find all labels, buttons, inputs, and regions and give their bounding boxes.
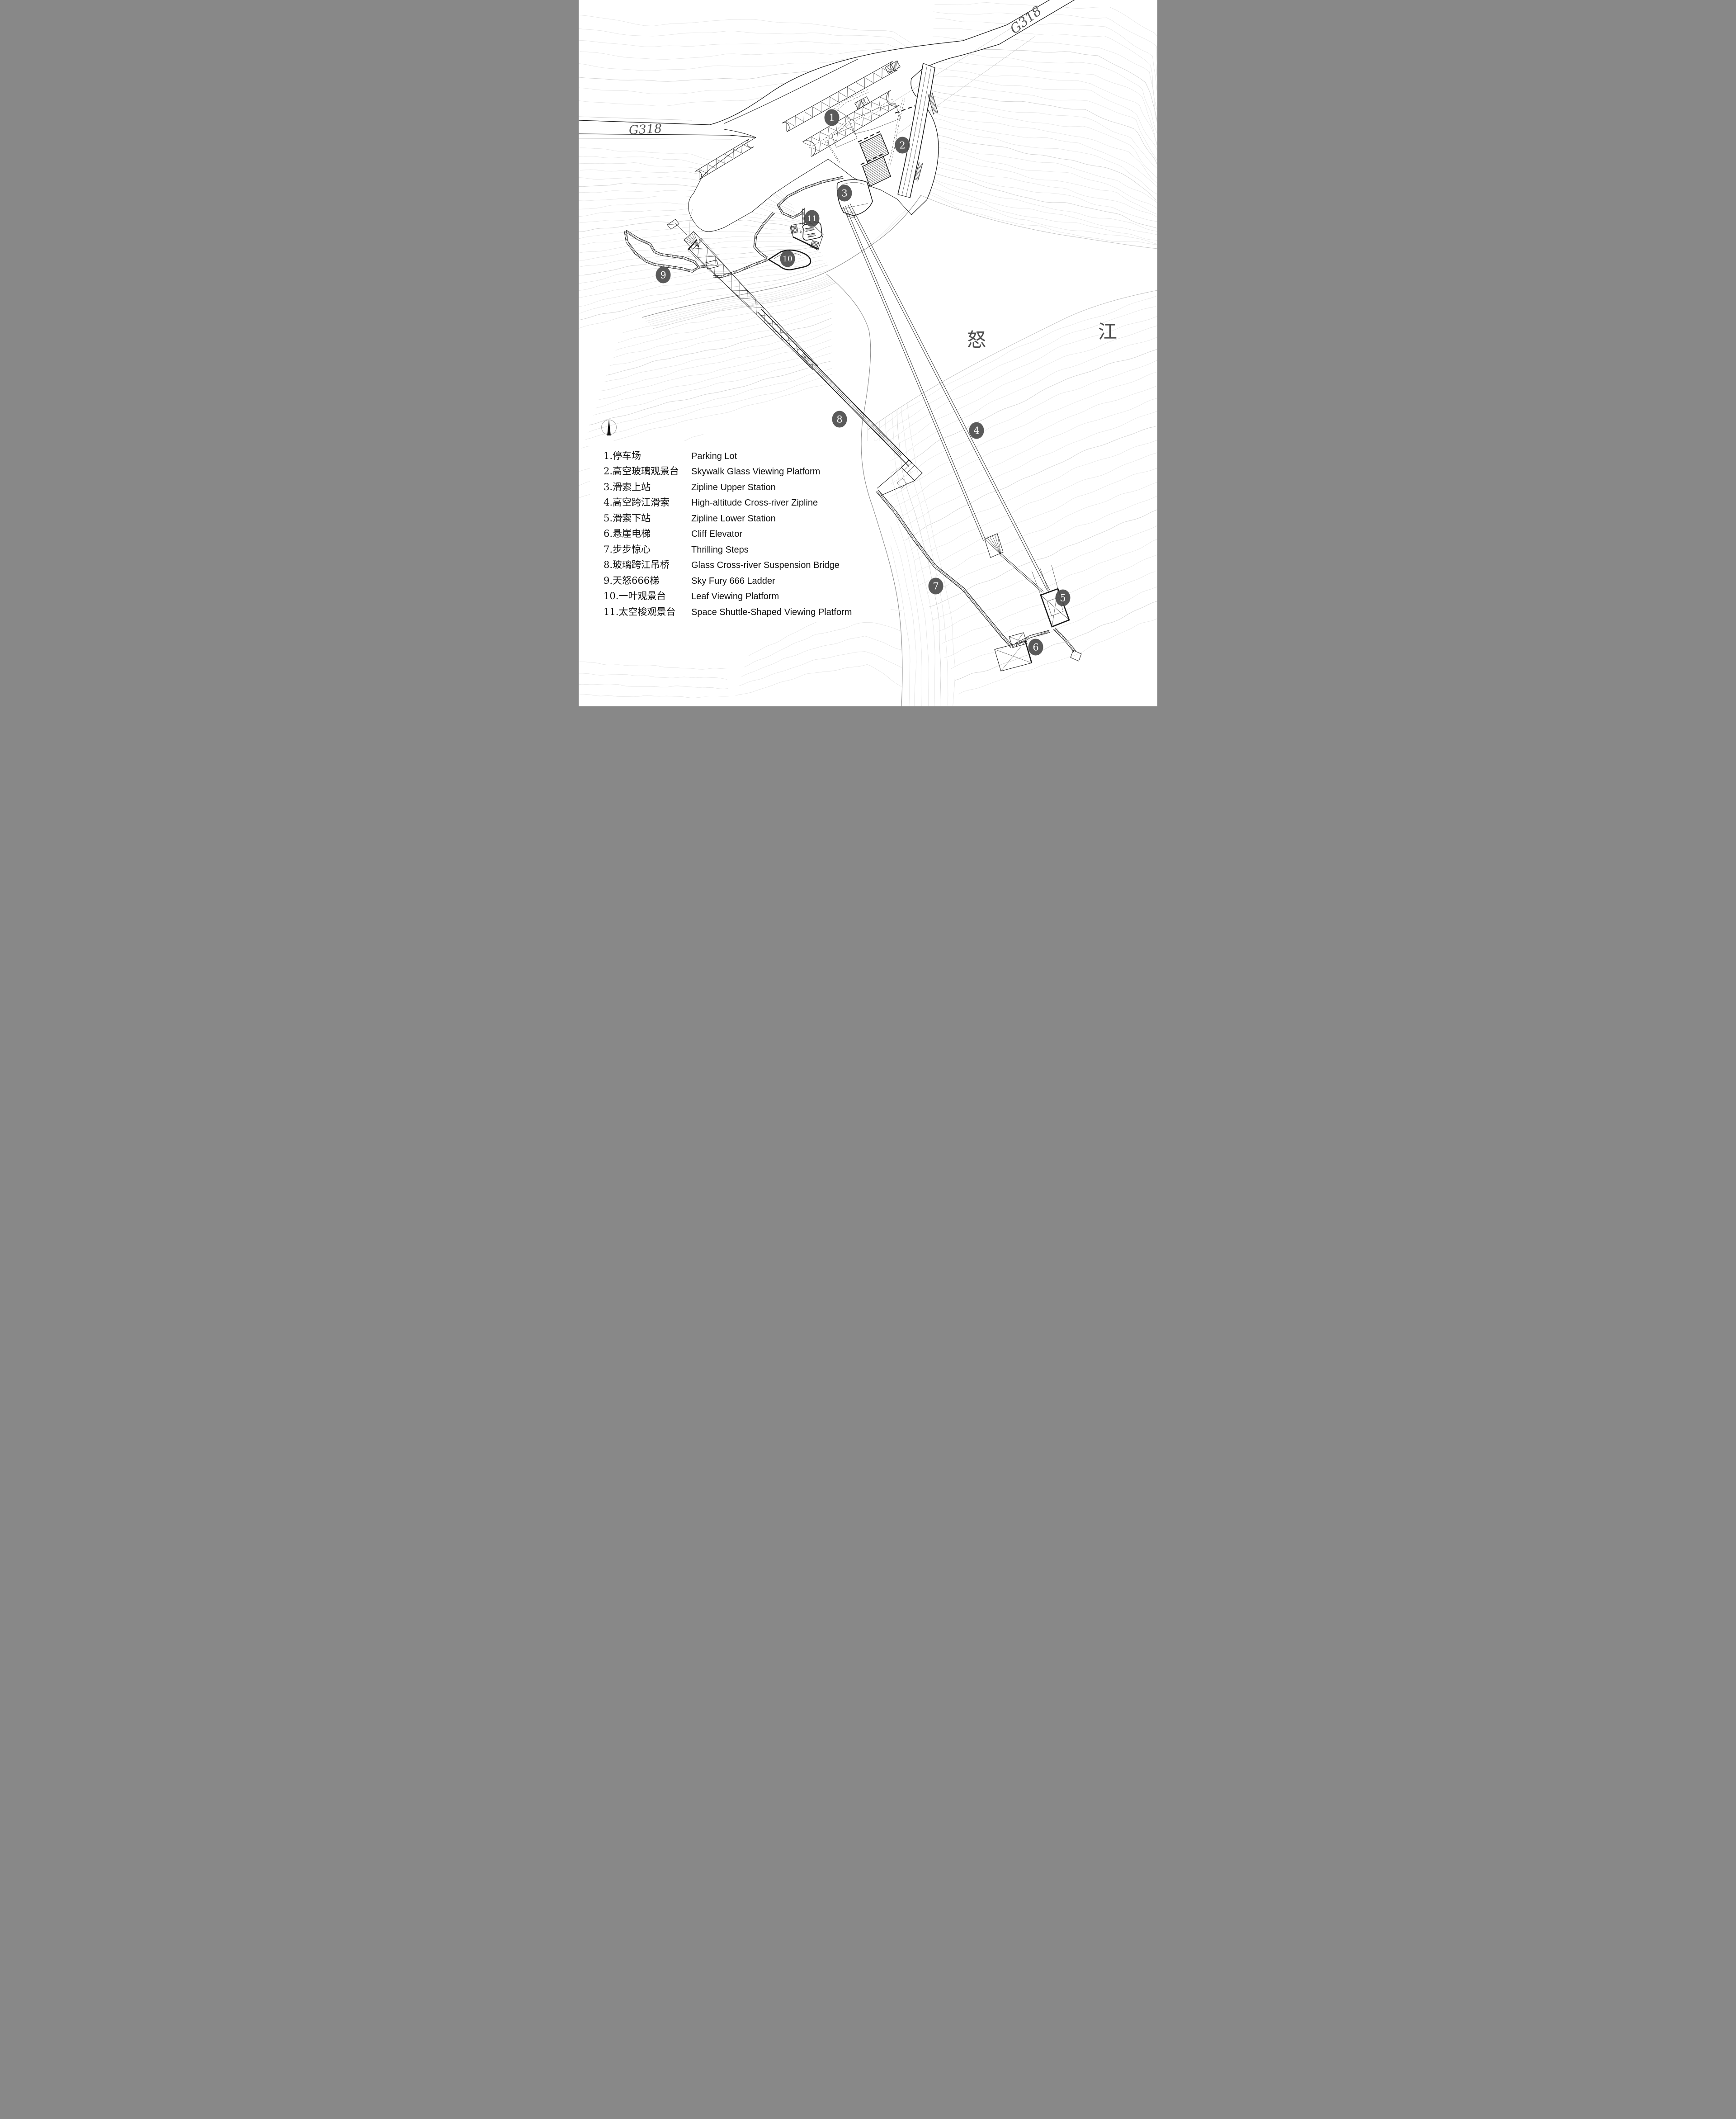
legend-item-zh: 1.停车场: [604, 449, 691, 462]
marker-1: 1: [825, 109, 840, 126]
legend-item-en: Skywalk Glass Viewing Platform: [691, 467, 820, 477]
legend-item: 5.滑索下站Zipline Lower Station: [604, 511, 776, 523]
marker-5: 5: [1056, 590, 1071, 606]
legend-item: 8.玻璃跨江吊桥Glass Cross-river Suspension Bri…: [604, 558, 840, 569]
legend-item-zh: 11.太空梭观景台: [604, 605, 691, 618]
legend-item-en: Zipline Upper Station: [691, 482, 776, 492]
legend-item-en: Space Shuttle-Shaped Viewing Platform: [691, 607, 852, 617]
legend-item: 1.停车场Parking Lot: [604, 449, 737, 460]
marker-4: 4: [969, 422, 984, 439]
north-needle-icon: [607, 419, 611, 435]
legend-item-en: Sky Fury 666 Ladder: [691, 576, 775, 586]
stair-note-label: k: [800, 230, 802, 234]
legend-item-zh: 3.滑索上站: [604, 480, 691, 493]
marker-3: 3: [837, 185, 852, 202]
marker-10: 10: [780, 251, 795, 267]
marker-11: 11: [805, 210, 820, 227]
legend-item-zh: 6.悬崖电梯: [604, 526, 691, 540]
north-compass: [602, 419, 617, 435]
marker-number: 3: [841, 188, 847, 199]
legend-item: 3.滑索上站Zipline Upper Station: [604, 480, 776, 492]
cliff-elevator: [995, 633, 1032, 671]
marker-9: 9: [656, 267, 671, 284]
legend-item-en: Thrilling Steps: [691, 545, 749, 555]
marker-number: 6: [1033, 642, 1038, 653]
marker-number: 4: [973, 426, 979, 436]
legend-item: 10.一叶观景台Leaf Viewing Platform: [604, 589, 779, 601]
legend-item-zh: 8.玻璃跨江吊桥: [604, 558, 691, 571]
marker-number: 11: [807, 214, 817, 223]
legend-item-zh: 10.一叶观景台: [604, 589, 691, 602]
legend-item-en: High-altitude Cross-river Zipline: [691, 498, 818, 508]
legend-item-en: Parking Lot: [691, 451, 737, 461]
river-label-nu: 怒: [967, 329, 986, 351]
legend-item-zh: 4.高空跨江滑索: [604, 495, 691, 509]
marker-number: 7: [933, 581, 939, 592]
marker-number: 5: [1060, 593, 1066, 604]
legend-item-zh: 2.高空玻璃观景台: [604, 464, 691, 478]
legend-item: 6.悬崖电梯Cliff Elevator: [604, 526, 742, 538]
legend-item-en: Leaf Viewing Platform: [691, 591, 779, 601]
legend-item: 7.步步惊心Thrilling Steps: [604, 542, 749, 554]
marker-8: 8: [832, 411, 847, 428]
marker-number: 10: [783, 255, 793, 264]
marker-number: 9: [660, 270, 666, 281]
road-label-g318-west: G318: [628, 122, 662, 137]
legend-item-zh: 7.步步惊心: [604, 542, 691, 556]
legend-item: 2.高空玻璃观景台Skywalk Glass Viewing Platform: [604, 464, 820, 476]
marker-number: 1: [829, 113, 835, 123]
marker-number: 8: [836, 414, 842, 425]
legend-item-en: Glass Cross-river Suspension Bridge: [691, 560, 840, 570]
site-plan-page: k1234567891011G318G318怒江 1.停车场Parking Lo…: [579, 0, 1157, 706]
river-label-jiang: 江: [1098, 321, 1117, 343]
marker-7: 7: [929, 578, 943, 595]
marker-2: 2: [895, 137, 910, 154]
legend-item-en: Zipline Lower Station: [691, 514, 776, 524]
legend-item: 9.天怒666梯Sky Fury 666 Ladder: [604, 573, 775, 585]
marker-number: 2: [899, 140, 905, 151]
legend-item-zh: 5.滑索下站: [604, 511, 691, 525]
marker-6: 6: [1028, 639, 1043, 656]
legend-item: 11.太空梭观景台Space Shuttle-Shaped Viewing Pl…: [604, 605, 852, 616]
legend-item: 4.高空跨江滑索High-altitude Cross-river Ziplin…: [604, 495, 818, 507]
legend-item-zh: 9.天怒666梯: [604, 573, 691, 587]
legend-item-en: Cliff Elevator: [691, 529, 742, 539]
